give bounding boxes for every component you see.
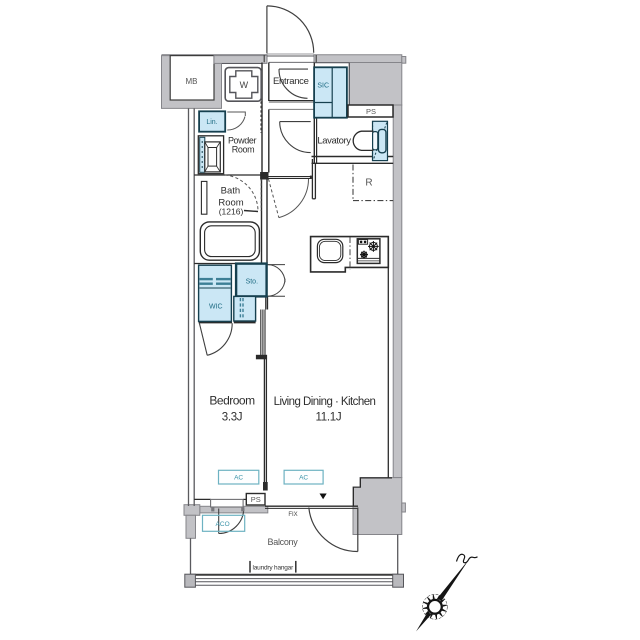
svg-text:11.1J: 11.1J — [316, 412, 342, 424]
svg-text:MB: MB — [186, 77, 198, 86]
svg-text:PS: PS — [251, 495, 261, 504]
svg-text:Lavatory: Lavatory — [317, 136, 351, 147]
svg-text:Bath: Bath — [221, 186, 241, 197]
svg-text:WIC: WIC — [209, 303, 223, 310]
svg-text:Bedroom: Bedroom — [209, 394, 255, 408]
svg-text:FIX: FIX — [288, 512, 297, 518]
svg-text:SIC: SIC — [317, 83, 329, 90]
svg-text:Sto.: Sto. — [246, 278, 259, 285]
svg-text:R: R — [365, 178, 372, 189]
svg-text:AC: AC — [299, 475, 308, 482]
svg-text:Room: Room — [232, 144, 254, 154]
svg-text:Living Dining · Kitchen: Living Dining · Kitchen — [274, 396, 376, 408]
svg-text:Lin.: Lin. — [206, 119, 217, 126]
svg-text:laundry hangar: laundry hangar — [253, 564, 295, 571]
svg-text:3.3J: 3.3J — [222, 412, 243, 424]
svg-text:Entrance: Entrance — [273, 76, 309, 87]
svg-text:ACO: ACO — [216, 521, 230, 528]
svg-text:AC: AC — [234, 475, 243, 482]
svg-text:(1216): (1216) — [219, 207, 244, 217]
svg-text:Balcony: Balcony — [268, 537, 299, 547]
svg-text:W: W — [240, 80, 249, 90]
svg-text:PS: PS — [366, 107, 376, 116]
